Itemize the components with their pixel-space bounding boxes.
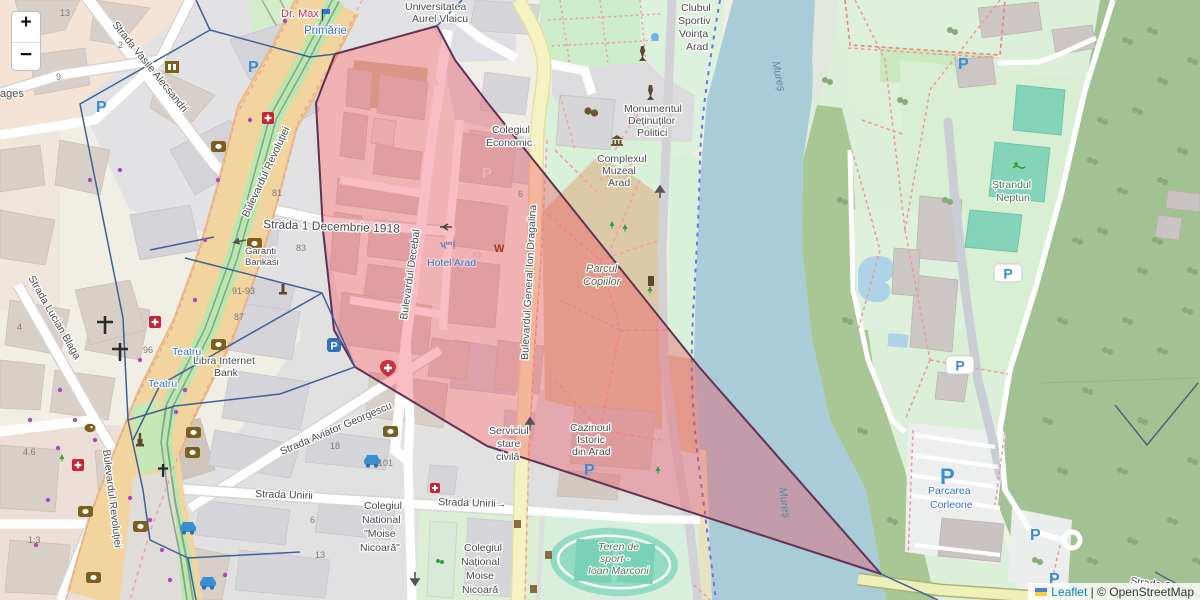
svg-text:ʯᵗᵐ∣: ʯᵗᵐ∣ — [440, 240, 456, 249]
svg-text:81: 81 — [272, 188, 282, 198]
svg-text:Bankasi: Bankasi — [245, 257, 279, 268]
svg-text:6: 6 — [518, 189, 523, 199]
svg-text:4.6: 4.6 — [23, 447, 36, 457]
svg-text:101: 101 — [378, 458, 393, 468]
svg-text:Colegiul: Colegiul — [364, 500, 402, 512]
svg-text:Strada Unirii→: Strada Unirii→ — [438, 496, 507, 510]
svg-text:P: P — [958, 56, 969, 73]
svg-text:ages: ages — [0, 88, 24, 100]
svg-text:Neptun: Neptun — [996, 192, 1030, 204]
svg-text:sport -: sport - — [600, 553, 630, 565]
svg-text:96: 96 — [143, 345, 153, 355]
svg-text:83: 83 — [296, 243, 306, 253]
svg-text:din Arad: din Arad — [572, 446, 611, 458]
svg-text:18: 18 — [330, 441, 340, 451]
svg-text:P: P — [1003, 266, 1012, 282]
svg-text:Corleone: Corleone — [930, 499, 973, 511]
svg-text:Hotel Arad: Hotel Arad — [427, 257, 476, 269]
svg-text:Muzeal: Muzeal — [602, 165, 636, 177]
svg-text:6: 6 — [310, 515, 315, 525]
svg-text:Universitatea: Universitatea — [405, 1, 466, 13]
svg-text:Copiilor: Copiilor — [583, 276, 622, 288]
svg-text:Ioan Marconi: Ioan Marconi — [588, 565, 649, 577]
svg-text:Moise: Moise — [466, 570, 494, 582]
svg-text:Complexul: Complexul — [597, 153, 647, 165]
svg-text:Clubul: Clubul — [681, 2, 711, 14]
svg-text:civilă: civilă — [496, 451, 519, 463]
svg-text:P: P — [330, 341, 337, 353]
svg-text:91-93: 91-93 — [232, 286, 255, 296]
svg-text:Cazinoul: Cazinoul — [570, 422, 611, 434]
svg-text:W: W — [494, 243, 505, 255]
svg-text:13: 13 — [60, 8, 70, 18]
svg-text:Dr. Max: Dr. Max — [281, 8, 319, 20]
svg-text:Monumentul: Monumentul — [624, 103, 682, 115]
svg-text:P: P — [584, 462, 595, 479]
svg-text:9: 9 — [56, 72, 61, 82]
svg-text:87: 87 — [234, 312, 244, 322]
svg-text:Colegiul: Colegiul — [464, 542, 502, 554]
svg-text:Garanti: Garanti — [245, 246, 276, 257]
svg-text:Nicoară": Nicoară" — [360, 542, 400, 554]
svg-text:Deținuților: Deținuților — [628, 115, 676, 127]
svg-text:Politici: Politici — [637, 127, 667, 139]
svg-text:Sportiv: Sportiv — [678, 15, 711, 27]
svg-text:stare: stare — [497, 438, 521, 450]
svg-text:P: P — [364, 164, 374, 181]
svg-text:Nicoară: Nicoară — [462, 584, 498, 596]
svg-text:1:3: 1:3 — [28, 535, 41, 545]
svg-text:Național: Național — [461, 556, 500, 568]
svg-text:"Moise: "Moise — [364, 528, 396, 540]
svg-text:P: P — [482, 165, 492, 182]
svg-text:P: P — [955, 358, 964, 374]
svg-text:P: P — [429, 77, 439, 94]
svg-text:National: National — [362, 514, 401, 526]
svg-text:Arad: Arad — [686, 41, 708, 53]
svg-text:Teatru: Teatru — [148, 378, 177, 390]
svg-text:2: 2 — [118, 40, 123, 50]
svg-text:P: P — [1030, 527, 1041, 544]
svg-text:Bank: Bank — [214, 367, 239, 379]
svg-text:Parcul: Parcul — [586, 263, 618, 275]
svg-text:Libra Internet: Libra Internet — [193, 355, 255, 367]
svg-text:P: P — [248, 59, 259, 76]
svg-text:Parcarea: Parcarea — [928, 485, 971, 497]
svg-text:Voința: Voința — [679, 28, 708, 40]
svg-text:4: 4 — [17, 322, 22, 332]
svg-text:Istoric: Istoric — [577, 434, 605, 446]
svg-text:Aurel Vlaicu: Aurel Vlaicu — [412, 13, 468, 25]
svg-text:Teren de: Teren de — [598, 541, 639, 553]
svg-text:P: P — [96, 99, 107, 116]
svg-text:Primărie: Primărie — [304, 25, 347, 37]
svg-text:Serviciul: Serviciul — [489, 425, 529, 437]
svg-text:Strada Unirii: Strada Unirii — [255, 488, 313, 502]
svg-text:Colegiul: Colegiul — [492, 124, 530, 136]
svg-text:Ștrandul: Ștrandul — [992, 179, 1031, 191]
svg-text:Arad: Arad — [608, 177, 630, 189]
svg-text:13: 13 — [315, 550, 325, 560]
svg-text:Economic: Economic — [486, 137, 532, 149]
